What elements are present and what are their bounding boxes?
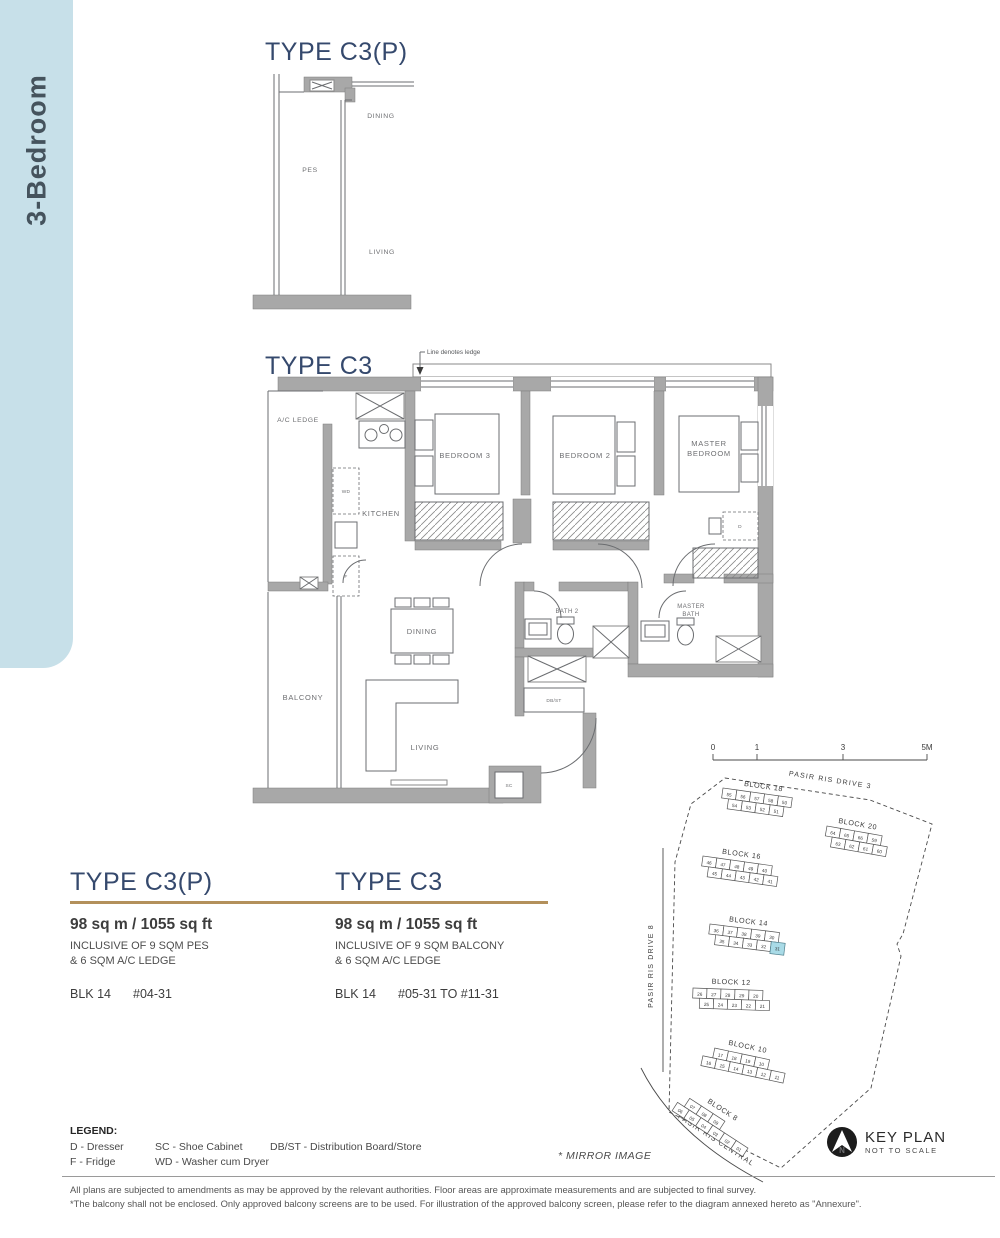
category-tab: 3-Bedroom	[0, 0, 73, 668]
room-label-dining-cp: DINING	[367, 113, 394, 120]
ledge-outline	[413, 364, 771, 377]
fridge-icon: F	[333, 556, 359, 596]
tv-console-icon	[391, 780, 447, 785]
room-label-master1: MASTER	[691, 439, 726, 448]
keyplan-block-10: BLOCK 10 17 18 19 10 16 15 14 13 12 11	[701, 1033, 790, 1083]
svg-text:5M: 5M	[921, 743, 932, 752]
room-label-balcony: BALCONY	[283, 693, 324, 702]
north-arrow-icon: N	[826, 1126, 858, 1158]
sofa-icon	[366, 680, 458, 771]
keyplan-block-20: BLOCK 20 64 65 66 59 63 62 61 60	[824, 814, 892, 856]
footer-line1: All plans are subjected to amendments as…	[70, 1184, 756, 1195]
spec-c3-inclusive1: INCLUSIVE OF 9 SQM BALCONY	[335, 940, 504, 952]
room-label-bath2: BATH 2	[556, 609, 579, 615]
svg-text:20: 20	[753, 994, 759, 999]
spec-cp-inclusive2: & 6 SQM A/C LEDGE	[70, 955, 176, 967]
room-label-living-cp: LIVING	[369, 249, 395, 256]
shoe-cabinet-icon: SC	[495, 772, 523, 798]
legend-item-shoe-cabinet: SC - Shoe Cabinet	[155, 1141, 243, 1153]
kitchen-sink-icon	[335, 522, 357, 548]
master-bath-fixtures	[641, 618, 694, 645]
room-label-dining: DINING	[407, 627, 437, 636]
svg-text:23: 23	[732, 1003, 738, 1008]
road-label-drive3: PASIR RIS DRIVE 3	[788, 771, 872, 791]
legend-item-dresser: D - Dresser	[70, 1141, 124, 1153]
room-label-mbath2: BATH	[682, 612, 699, 618]
category-tab-label: 3-Bedroom	[22, 74, 53, 226]
room-label-bedroom2: BEDROOM 2	[559, 451, 610, 460]
room-label-living: LIVING	[411, 743, 440, 752]
keyplan-title: KEY PLAN	[865, 1129, 946, 1146]
road-label-drive8: PASIR RIS DRIVE 8	[648, 924, 655, 1008]
spec-c3-block-units: BLK 14#05-31 TO #11-31	[335, 987, 499, 1001]
svg-text:3: 3	[841, 743, 846, 752]
svg-text:0: 0	[711, 743, 716, 752]
room-label-pes: PES	[302, 167, 317, 174]
room-label-master2: BEDROOM	[687, 449, 731, 458]
room-label-ac-ledge: A/C LEDGE	[277, 417, 319, 424]
footer-line2: *The balcony shall not be enclosed. Only…	[70, 1198, 862, 1209]
bath2-fixtures	[525, 617, 574, 644]
svg-text:BLOCK 14: BLOCK 14	[729, 914, 769, 928]
spec-c3-inclusive2: & 6 SQM A/C LEDGE	[335, 955, 441, 967]
svg-text:24: 24	[718, 1002, 724, 1007]
ledge-note-text: Line denotes ledge	[427, 349, 481, 356]
svg-text:BLOCK 12: BLOCK 12	[712, 977, 751, 987]
plan-cp-title: TYPE C3(P)	[265, 38, 408, 67]
legend-item-washer-dryer: WD - Washer cum Dryer	[155, 1156, 269, 1168]
svg-text:28: 28	[725, 993, 731, 998]
bedroom2-furniture	[553, 416, 649, 540]
gold-divider	[70, 901, 548, 904]
keyplan-drawing: 0 1 3 5M PASIR RIS DRIVE 3 PASIR RIS DRI…	[635, 738, 995, 1183]
room-label-kitchen: KITCHEN	[362, 509, 400, 518]
spec-c3-area: 98 sq m / 1055 sq ft	[335, 916, 477, 934]
svg-text:1: 1	[755, 743, 760, 752]
svg-text:22: 22	[746, 1003, 752, 1008]
legend-heading: LEGEND:	[70, 1125, 117, 1137]
mirror-image-note: * MIRROR IMAGE	[558, 1150, 651, 1162]
plan-cp-drawing: PES DINING LIVING	[248, 74, 418, 314]
keyplan-caption: N KEY PLAN NOT TO SCALE	[826, 1126, 946, 1158]
spec-cp-block-units: BLK 14#04-31	[70, 987, 172, 1001]
svg-text:BLOCK 16: BLOCK 16	[722, 847, 762, 861]
spec-cp-title: TYPE C3(P)	[70, 868, 213, 897]
spec-c3-title: TYPE C3	[335, 868, 443, 897]
svg-text:BLOCK 18: BLOCK 18	[744, 779, 784, 793]
floorplan-page: 3-Bedroom TYPE C3(P) PES DINING LIVING	[0, 0, 1000, 1238]
svg-text:29: 29	[739, 993, 745, 998]
svg-text:WD: WD	[342, 489, 351, 495]
svg-text:21: 21	[760, 1004, 766, 1009]
svg-text:25: 25	[704, 1002, 710, 1007]
keyplan-block-14: BLOCK 14 36 37 38 39 30 35 34 33 32 31	[707, 912, 788, 955]
stove-icon	[359, 421, 405, 448]
svg-text:27: 27	[711, 992, 717, 997]
svg-text:DB/ST: DB/ST	[546, 698, 561, 704]
plan-cp-lines	[274, 74, 414, 295]
svg-text:26: 26	[697, 992, 703, 997]
legend-item-dbst: DB/ST - Distribution Board/Store	[270, 1141, 422, 1153]
plan-cp-walls	[253, 77, 411, 309]
keyplan-block-12: BLOCK 12 26 27 28 29 20 25 24 23 22 21	[692, 976, 770, 1011]
dresser-label: D	[738, 524, 742, 530]
room-label-mbath1: MASTER	[677, 604, 705, 610]
spec-cp-area: 98 sq m / 1055 sq ft	[70, 916, 212, 934]
site-boundary	[669, 778, 932, 1168]
keyplan-block-16: BLOCK 16 46 47 48 49 40 45 44 43 42 41	[700, 844, 781, 886]
footer-divider	[62, 1176, 995, 1177]
legend-item-fridge: F - Fridge	[70, 1156, 116, 1168]
washer-dryer-icon: WD	[333, 468, 359, 514]
spec-cp-inclusive1: INCLUSIVE OF 9 SQM PES	[70, 940, 209, 952]
keyplan-scale-bar: 0 1 3 5M	[711, 743, 933, 760]
keyplan-subtitle: NOT TO SCALE	[865, 1146, 946, 1155]
keyplan-block-18: BLOCK 18 55 56 57 58 50 54 53 52 51	[720, 776, 794, 817]
svg-text:N: N	[839, 1146, 845, 1155]
bedroom3-furniture	[415, 414, 503, 540]
dbst-box: DB/ST	[524, 688, 584, 712]
room-label-bedroom3: BEDROOM 3	[439, 451, 490, 460]
svg-text:SC: SC	[505, 783, 512, 789]
